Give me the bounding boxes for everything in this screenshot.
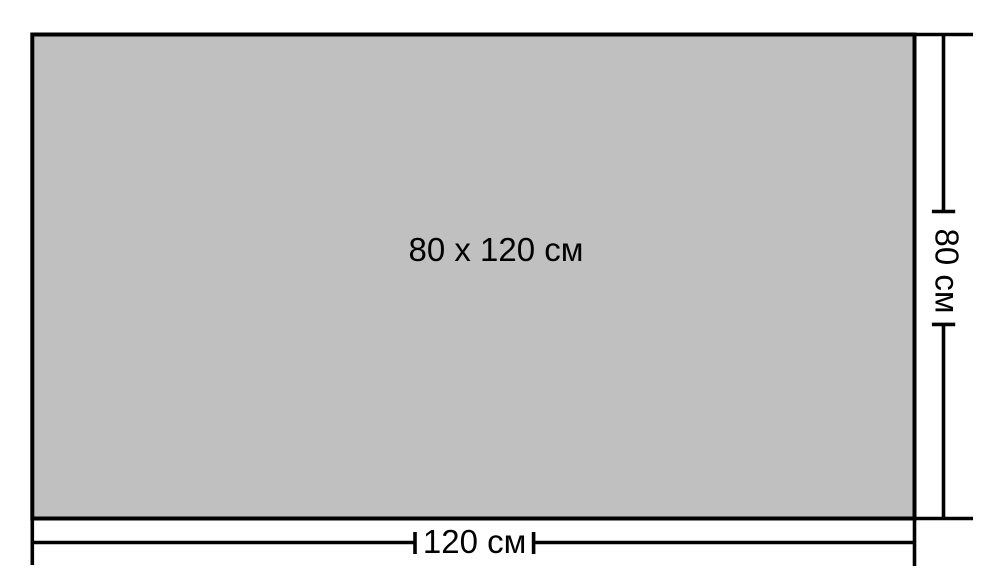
svg-text:80 см: 80 см bbox=[929, 228, 966, 313]
svg-text:120 см: 120 см bbox=[423, 523, 526, 560]
svg-text:80 x 120 см: 80 x 120 см bbox=[409, 231, 584, 268]
